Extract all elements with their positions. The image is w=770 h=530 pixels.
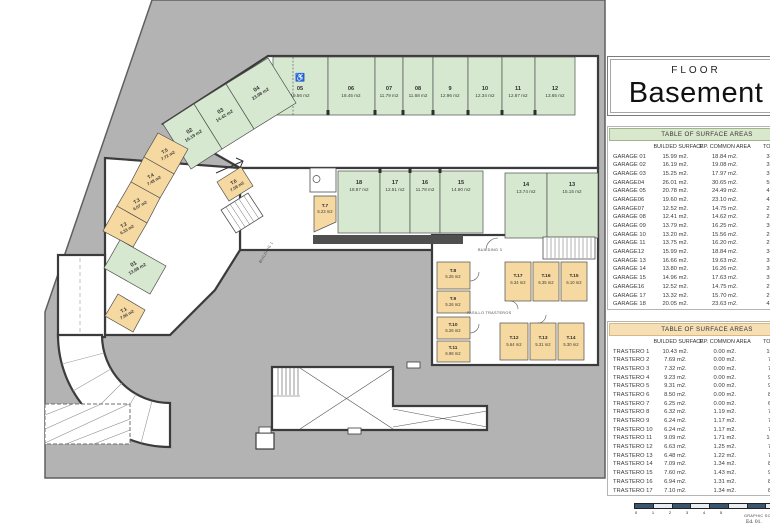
cell-built: 6.48 m2.	[654, 453, 698, 459]
cell-total: 7.41 m2.	[753, 427, 770, 433]
table-row: TRASTERO 157.60 m2.1.43 m2.9.03 m2.	[608, 469, 770, 478]
col-header-built: BUILDED SURFACE	[653, 339, 697, 345]
cell-total: 9.31 m2.	[753, 383, 770, 389]
stall-number: 06	[348, 86, 354, 92]
cell-name: GARAGE 01	[608, 154, 654, 160]
cell-common: 19.08 m2.	[697, 162, 752, 168]
cell-total: 8.44 m2.	[753, 488, 770, 494]
cell-name: GARAGE 14	[608, 266, 654, 272]
cell-total: 35.27 m2.	[753, 162, 770, 168]
cell-name: TRASTERO 3	[608, 366, 654, 372]
cell-name: TRASTERO 14	[608, 461, 654, 467]
cell-name: GARAGE06	[608, 197, 654, 203]
cell-total: 32.59 m2.	[753, 275, 770, 281]
cell-common: 1.17 m2.	[697, 418, 752, 424]
stall-number: 17	[392, 180, 398, 186]
cell-name: TRASTERO 8	[608, 409, 654, 415]
stall-label: T.12	[509, 335, 518, 341]
cell-built: 8.50 m2.	[654, 392, 698, 398]
stall-area: 6.35 m2	[538, 280, 554, 285]
cell-total: 7.69 m2.	[753, 357, 770, 363]
col-header-total: TOTAL AREA	[753, 144, 770, 150]
cell-built: 6.32 m2.	[654, 409, 698, 415]
cell-total: 8.43 m2.	[753, 461, 770, 467]
cell-total: 33.22 m2.	[753, 171, 770, 177]
cell-built: 12.52 m2.	[654, 284, 698, 290]
cell-built: 9.23 m2.	[654, 375, 698, 381]
floor-label: FLOOR	[611, 65, 770, 76]
stall-label: T.17	[513, 273, 522, 279]
cell-total: 56.66 m2.	[753, 180, 770, 186]
table-row: TRASTERO 59.31 m2.0.00 m2.9.31 m2.	[608, 382, 770, 391]
cell-common: 1.17 m2.	[697, 427, 752, 433]
stall-area: 18.87 m2	[349, 187, 369, 192]
cell-built: 15.25 m2.	[654, 171, 698, 177]
cell-common: 0.00 m2.	[697, 392, 752, 398]
stall-area: 5.26 m2	[445, 328, 461, 333]
stall-label: T.13	[538, 335, 547, 341]
col-header-total: TOTAL AREA	[753, 339, 770, 345]
scale-tick: 3	[682, 510, 692, 515]
cell-name: GARAGE07	[608, 206, 654, 212]
stall-number: 12	[552, 86, 558, 92]
table-row: GARAGE 1413.80 m2.16.26 m2.30.06 m2.	[608, 265, 770, 274]
cell-built: 13.75 m2.	[654, 240, 698, 246]
cell-name: GARAGE 18	[608, 301, 654, 307]
cell-common: 18.84 m2.	[697, 249, 752, 255]
cell-built: 15.99 m2.	[654, 249, 698, 255]
cell-name: GARAGE 17	[608, 293, 654, 299]
cell-name: GARAGE 03	[608, 171, 654, 177]
cell-common: 24.49 m2.	[697, 188, 752, 194]
col-header-common: P.P. COMMON AREA	[697, 144, 752, 150]
cell-total: 30.04 m2.	[753, 223, 770, 229]
stall-label: T.15	[569, 273, 578, 279]
edition-note: Ed. 01.	[746, 519, 762, 525]
cell-common: 0.00 m2.	[697, 357, 752, 363]
table-row: GARAGE 0115.99 m2.18.84 m2.34.83 m2.	[608, 152, 770, 161]
table-row: TRASTERO 136.48 m2.1.22 m2.7.70 m2.	[608, 451, 770, 460]
col-header-common: P.P. COMMON AREA	[697, 339, 752, 345]
cell-built: 13.79 m2.	[654, 223, 698, 229]
stall-number: 14	[523, 182, 530, 188]
cell-total: 7.51 m2.	[753, 409, 770, 415]
stall-number: 16	[422, 180, 428, 186]
scale-tick: 0	[631, 510, 641, 515]
cell-common: 14.75 m2.	[697, 284, 752, 290]
cell-built: 7.60 m2.	[654, 470, 698, 476]
scale-tick: 5	[716, 510, 726, 515]
table-row: GARAGE 1013.20 m2.15.56 m2.28.76 m2.	[608, 230, 770, 239]
cell-common: 18.84 m2.	[697, 154, 752, 160]
table-row: TRASTERO 106.24 m2.1.17 m2.7.41 m2.	[608, 425, 770, 434]
cell-total: 27.27 m2.	[753, 284, 770, 290]
cell-common: 17.63 m2.	[697, 275, 752, 281]
cell-built: 14.96 m2.	[654, 275, 698, 281]
table-row: TRASTERO 96.24 m2.1.17 m2.7.41 m2.	[608, 417, 770, 426]
stall-number: 11	[515, 86, 521, 92]
cell-common: 1.25 m2.	[697, 444, 752, 450]
cell-common: 14.75 m2.	[697, 206, 752, 212]
cell-built: 6.24 m2.	[654, 418, 698, 424]
retaining-wall	[313, 235, 463, 244]
table-column-headers: BUILDED SURFACE P.P. COMMON AREA TOTAL A…	[608, 337, 770, 347]
cell-common: 17.97 m2.	[697, 171, 752, 177]
cell-total: 7.88 m2.	[753, 444, 770, 450]
cell-name: GARAGE 02	[608, 162, 654, 168]
cell-total: 27.03 m2.	[753, 214, 770, 220]
cell-name: GARAGE12	[608, 249, 654, 255]
cell-common: 0.00 m2.	[697, 349, 752, 355]
cell-built: 16.66 m2.	[654, 258, 698, 264]
cell-built: 13.32 m2.	[654, 293, 698, 299]
cell-built: 12.41 m2.	[654, 214, 698, 220]
cell-name: GARAGE 05	[608, 188, 654, 194]
table-row: TRASTERO 166.94 m2.1.31 m2.8.25 m2.	[608, 478, 770, 487]
table-row: TRASTERO 147.09 m2.1.34 m2.8.43 m2.	[608, 460, 770, 469]
cell-name: TRASTERO 17	[608, 488, 654, 494]
table-row: GARAGE 0913.79 m2.16.25 m2.30.04 m2.	[608, 222, 770, 231]
table-row: GARAGE 0315.25 m2.17.97 m2.33.22 m2.	[608, 170, 770, 179]
basement-floor-plan-sheet: ♿ 05 19.56 m2 06 18.45 m2 07 11.79 m2 08…	[0, 0, 770, 530]
cell-common: 23.63 m2.	[697, 301, 752, 307]
stall-area: 13.74 m2	[516, 189, 536, 194]
cell-name: GARAGE 11	[608, 240, 654, 246]
cell-total: 42.70 m2.	[753, 197, 770, 203]
table-row: GARAGE1612.52 m2.14.75 m2.27.27 m2.	[608, 283, 770, 292]
table-row: GARAGE0426.01 m2.30.65 m2.56.66 m2.	[608, 178, 770, 187]
stall-area: 5.64 m2	[506, 342, 522, 347]
cell-name: GARAGE 15	[608, 275, 654, 281]
table-row: GARAGE0619.60 m2.23.10 m2.42.70 m2.	[608, 196, 770, 205]
title-block-inner: FLOOR Basement	[610, 59, 770, 113]
cell-name: TRASTERO 2	[608, 357, 654, 363]
cell-common: 1.31 m2.	[697, 479, 752, 485]
cell-common: 16.26 m2.	[697, 266, 752, 272]
stall-number: 9	[448, 86, 451, 92]
cell-built: 6.24 m2.	[654, 427, 698, 433]
cell-common: 23.10 m2.	[697, 197, 752, 203]
title-block: FLOOR Basement	[607, 56, 770, 116]
table-row: TRASTERO 27.69 m2.0.00 m2.7.69 m2.	[608, 356, 770, 365]
stall-area: 5.30 m2	[563, 342, 579, 347]
cell-built: 10.43 m2.	[654, 349, 698, 355]
table-row: GARAGE1215.99 m2.18.84 m2.34.83 m2.	[608, 248, 770, 257]
stall-area: 5.26 m2	[445, 302, 461, 307]
cell-built: 7.10 m2.	[654, 488, 698, 494]
cell-name: TRASTERO 11	[608, 435, 654, 441]
table-row: GARAGE 0812.41 m2.14.62 m2.27.03 m2.	[608, 213, 770, 222]
table-row: GARAGE 1113.75 m2.16.20 m2.29.95 m2.	[608, 239, 770, 248]
cell-name: TRASTERO 5	[608, 383, 654, 389]
stall-area: 6.34 m2	[510, 280, 526, 285]
cell-total: 34.83 m2.	[753, 249, 770, 255]
cell-total: 30.06 m2.	[753, 266, 770, 272]
cell-total: 29.95 m2.	[753, 240, 770, 246]
hatched-entrance-zone	[45, 404, 130, 444]
cell-total: 36.29 m2.	[753, 258, 770, 264]
cell-built: 12.52 m2.	[654, 206, 698, 212]
trastero-surface-table: TABLE OF SURFACE AREAS BUILDED SURFACE P…	[607, 321, 770, 496]
cell-name: TRASTERO 4	[608, 375, 654, 381]
cell-name: GARAGE 09	[608, 223, 654, 229]
garage-surface-table: TABLE OF SURFACE AREAS BUILDED SURFACE P…	[607, 126, 770, 310]
stall-area: 18.45 m2	[341, 93, 361, 98]
stall-area: 11.79 m2	[380, 93, 399, 98]
cell-built: 13.80 m2.	[654, 266, 698, 272]
cell-total: 43.68 m2.	[753, 301, 770, 307]
cell-total: 7.41 m2.	[753, 418, 770, 424]
table-row: GARAGE 1713.32 m2.15.70 m2.29.02 m2.	[608, 291, 770, 300]
cell-common: 1.43 m2.	[697, 470, 752, 476]
scale-tick: 1	[648, 510, 658, 515]
stall-label: T.16	[541, 273, 550, 279]
cell-built: 13.20 m2.	[654, 232, 698, 238]
cell-total: 7.32 m2.	[753, 366, 770, 372]
stall-area: 5.23 m2	[317, 209, 333, 214]
stall-number: 18	[356, 180, 362, 186]
cell-common: 0.00 m2.	[697, 383, 752, 389]
cell-built: 9.09 m2.	[654, 435, 698, 441]
cell-name: TRASTERO 12	[608, 444, 654, 450]
cell-common: 15.70 m2.	[697, 293, 752, 299]
stall-number: 05	[297, 86, 303, 92]
cell-name: TRASTERO 16	[608, 479, 654, 485]
cell-common: 1.22 m2.	[697, 453, 752, 459]
stall-label: T.14	[566, 335, 575, 341]
cell-common: 0.00 m2.	[697, 401, 752, 407]
cell-total: 45.27 m2.	[753, 188, 770, 194]
cell-built: 20.78 m2.	[654, 188, 698, 194]
table-row: TRASTERO 37.32 m2.0.00 m2.7.32 m2.	[608, 365, 770, 374]
table-row: GARAGE 0216.19 m2.19.08 m2.35.27 m2.	[608, 161, 770, 170]
cell-built: 26.01 m2.	[654, 180, 698, 186]
stall-area: 12.87 m2	[508, 93, 528, 98]
cell-name: TRASTERO 1	[608, 349, 654, 355]
cell-name: GARAGE04	[608, 180, 654, 186]
cell-total: 9.23 m2.	[753, 375, 770, 381]
stall-area: 12.51 m2	[385, 187, 405, 192]
stall-area: 14.90 m2	[451, 187, 471, 192]
stall-number: 13	[569, 182, 575, 188]
cell-total: 27.27 m2.	[753, 206, 770, 212]
cell-common: 15.56 m2.	[697, 232, 752, 238]
stall-area: 19.56 m2	[290, 93, 310, 98]
col-header-built: BUILDED SURFACE	[653, 144, 697, 150]
cell-built: 20.05 m2.	[654, 301, 698, 307]
table-row: GARAGE 1514.96 m2.17.63 m2.32.59 m2.	[608, 274, 770, 283]
cell-total: 8.50 m2.	[753, 392, 770, 398]
table-row: GARAGE 1820.05 m2.23.63 m2.43.68 m2.	[608, 300, 770, 309]
table-row: TRASTERO 119.09 m2.1.71 m2.10.80 m2.	[608, 434, 770, 443]
cell-name: GARAGE 13	[608, 258, 654, 264]
table-row: TRASTERO 49.23 m2.0.00 m2.9.23 m2.	[608, 373, 770, 382]
table-title: TABLE OF SURFACE AREAS	[609, 323, 770, 336]
cell-common: 19.63 m2.	[697, 258, 752, 264]
stall-area: 11.78 m2	[416, 187, 435, 192]
cell-built: 15.99 m2.	[654, 154, 698, 160]
stairs-building-3	[543, 237, 595, 259]
cell-name: TRASTERO 15	[608, 470, 654, 476]
table-row: GARAGE 0520.78 m2.24.49 m2.45.27 m2.	[608, 187, 770, 196]
cell-common: 1.34 m2.	[697, 461, 752, 467]
cell-total: 28.76 m2.	[753, 232, 770, 238]
table-row: TRASTERO 68.50 m2.0.00 m2.8.50 m2.	[608, 391, 770, 400]
cell-name: TRASTERO 10	[608, 427, 654, 433]
table-row: TRASTERO 177.10 m2.1.34 m2.8.44 m2.	[608, 486, 770, 495]
vent-shaft	[313, 176, 320, 183]
cell-total: 10.80 m2.	[753, 435, 770, 441]
cell-common: 1.34 m2.	[697, 488, 752, 494]
stall-area: 11.68 m2	[409, 93, 428, 98]
cell-total: 10.43 m2.	[753, 349, 770, 355]
cell-name: GARAGE 10	[608, 232, 654, 238]
cell-built: 7.32 m2.	[654, 366, 698, 372]
cell-name: TRASTERO 7	[608, 401, 654, 407]
cell-name: TRASTERO 6	[608, 392, 654, 398]
stall-area: 13.65 m2	[545, 93, 565, 98]
stall-area: 6.10 m2	[566, 280, 582, 285]
cell-common: 1.71 m2.	[697, 435, 752, 441]
table-title: TABLE OF SURFACE AREAS	[609, 128, 770, 141]
stall-number: 07	[386, 86, 392, 92]
cell-total: 6.25 m2.	[753, 401, 770, 407]
building-3-label: BUILDING 3	[478, 248, 502, 252]
garage-row-top: ♿ 05 19.56 m2 06 18.45 m2 07 11.79 m2 08…	[273, 57, 575, 115]
table-row: GARAGE 1316.66 m2.19.63 m2.36.29 m2.	[608, 256, 770, 265]
garage-row-right: 14 13.74 m2 13 15.15 m2	[505, 173, 598, 238]
trastero-table-rows: TRASTERO 110.43 m2.0.00 m2.10.43 m2.TRAS…	[608, 347, 770, 495]
garage-row-middle: 18 18.87 m2 17 12.51 m2 16 11.78 m2 15 1…	[338, 171, 483, 233]
stall-area: 12.34 m2	[475, 93, 495, 98]
cell-common: 0.00 m2.	[697, 375, 752, 381]
table-row: TRASTERO 126.63 m2.1.25 m2.7.88 m2.	[608, 443, 770, 452]
stall-number: 08	[415, 86, 421, 92]
cell-built: 9.31 m2.	[654, 383, 698, 389]
cell-built: 6.25 m2.	[654, 401, 698, 407]
table-row: GARAGE0712.52 m2.14.75 m2.27.27 m2.	[608, 204, 770, 213]
corridor-label: PASILLO TRASTEROS	[467, 311, 512, 315]
stall-area: 5.31 m2	[535, 342, 551, 347]
table-row: TRASTERO 76.25 m2.0.00 m2.6.25 m2.	[608, 399, 770, 408]
cell-common: 14.62 m2.	[697, 214, 752, 220]
cell-name: TRASTERO 13	[608, 453, 654, 459]
cell-total: 7.70 m2.	[753, 453, 770, 459]
cell-total: 29.02 m2.	[753, 293, 770, 299]
scale-tick: 2	[665, 510, 675, 515]
garage-table-rows: GARAGE 0115.99 m2.18.84 m2.34.83 m2.GARA…	[608, 152, 770, 308]
cell-common: 30.65 m2.	[697, 180, 752, 186]
table-row: TRASTERO 110.43 m2.0.00 m2.10.43 m2.	[608, 347, 770, 356]
table-row: TRASTERO 86.32 m2.1.19 m2.7.51 m2.	[608, 408, 770, 417]
wheelchair-icon: ♿	[295, 72, 305, 82]
floor-name: Basement	[611, 77, 770, 110]
cell-common: 16.20 m2.	[697, 240, 752, 246]
stall-number: 15	[458, 180, 464, 186]
stall-area: 15.15 m2	[562, 189, 582, 194]
cell-built: 6.63 m2.	[654, 444, 698, 450]
cell-common: 0.00 m2.	[697, 366, 752, 372]
stall-area: 12.96 m2	[440, 93, 460, 98]
cell-name: GARAGE16	[608, 284, 654, 290]
cell-common: 16.25 m2.	[697, 223, 752, 229]
scale-tick: 4	[699, 510, 709, 515]
cell-total: 8.25 m2.	[753, 479, 770, 485]
cell-total: 34.83 m2.	[753, 154, 770, 160]
graphic-scale-bar	[634, 503, 770, 509]
cell-name: GARAGE 08	[608, 214, 654, 220]
cell-common: 1.19 m2.	[697, 409, 752, 415]
stall-number: 10	[482, 86, 488, 92]
table-column-headers: BUILDED SURFACE P.P. COMMON AREA TOTAL A…	[608, 142, 770, 152]
graphic-scale-note: GRAPHIC SCALE	[744, 514, 770, 518]
cell-built: 19.60 m2.	[654, 197, 698, 203]
cell-built: 16.19 m2.	[654, 162, 698, 168]
cell-name: TRASTERO 9	[608, 418, 654, 424]
cell-built: 6.94 m2.	[654, 479, 698, 485]
stall-area: 5.26 m2	[445, 274, 461, 279]
cell-built: 7.69 m2.	[654, 357, 698, 363]
stall-area: 6.98 m2	[445, 351, 461, 356]
cell-built: 7.09 m2.	[654, 461, 698, 467]
cell-total: 9.03 m2.	[753, 470, 770, 476]
